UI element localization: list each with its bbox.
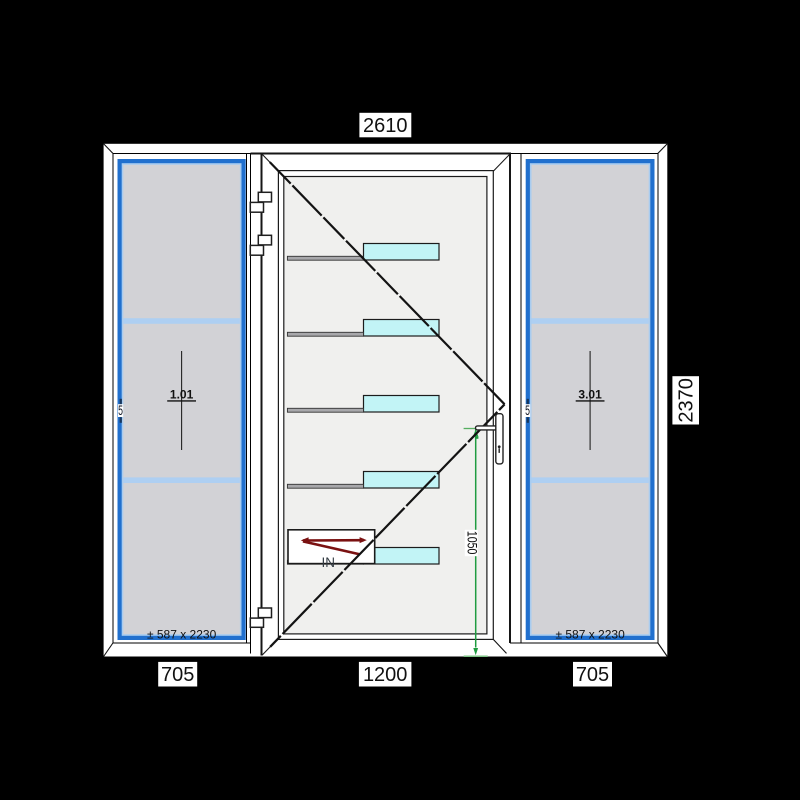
svg-text:1200: 1200 [363, 664, 408, 686]
svg-text:705: 705 [576, 664, 609, 686]
svg-text:5: 5 [118, 403, 123, 419]
svg-text:IN: IN [321, 555, 335, 570]
svg-text:± 587 x 2230: ± 587 x 2230 [147, 628, 217, 642]
svg-text:1050: 1050 [464, 531, 479, 555]
svg-text:5: 5 [525, 403, 530, 419]
svg-text:705: 705 [161, 664, 194, 686]
svg-text:3.01: 3.01 [578, 388, 602, 402]
svg-text:1.01: 1.01 [170, 388, 194, 402]
svg-text:± 587 x 2230: ± 587 x 2230 [555, 628, 625, 642]
svg-text:2370: 2370 [676, 378, 698, 423]
svg-text:2610: 2610 [363, 115, 408, 137]
